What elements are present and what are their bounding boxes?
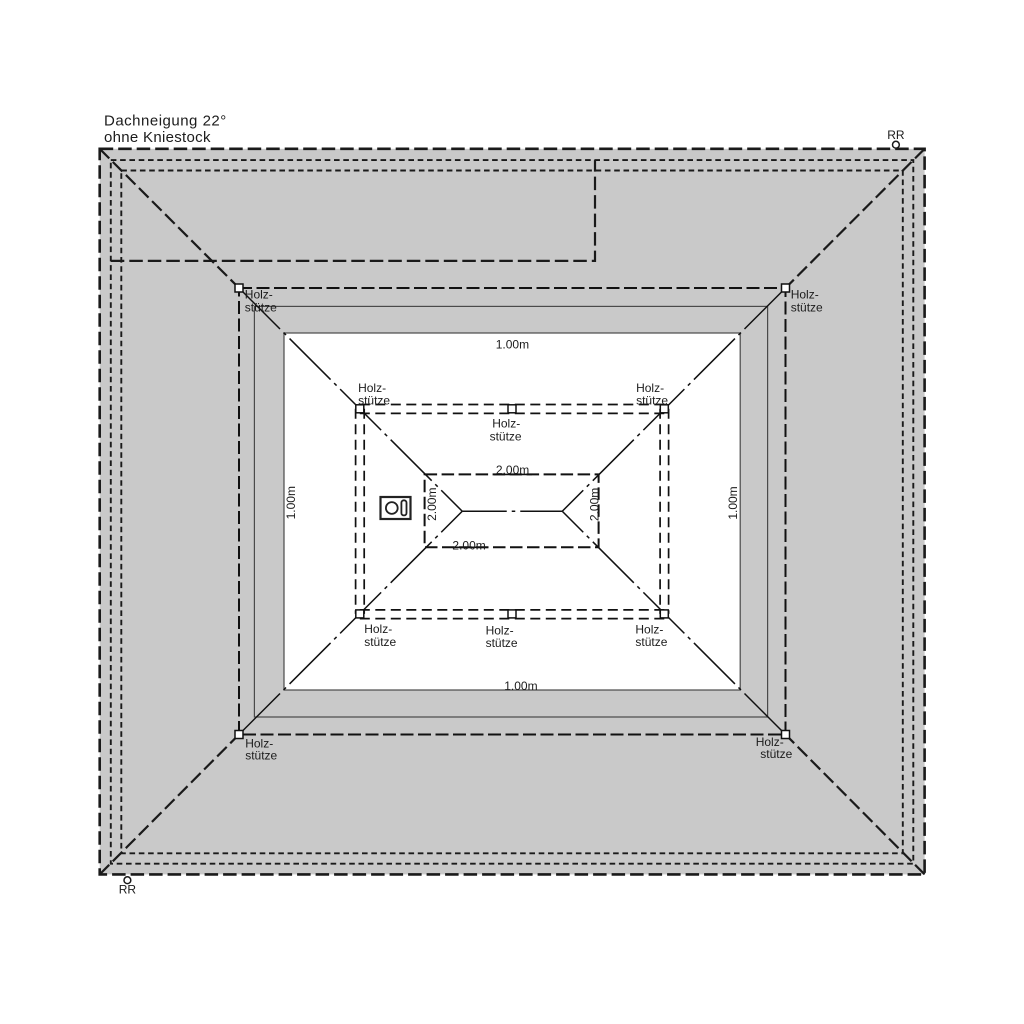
svg-text:1.00m: 1.00m (496, 337, 529, 351)
svg-text:1.00m: 1.00m (504, 679, 537, 693)
svg-text:1.00m: 1.00m (284, 486, 298, 519)
svg-text:ohne Kniestock: ohne Kniestock (104, 129, 211, 146)
svg-text:stütze: stütze (245, 748, 277, 762)
svg-text:stütze: stütze (791, 300, 823, 314)
svg-text:1.00m: 1.00m (726, 486, 740, 519)
svg-text:stütze: stütze (245, 300, 277, 314)
svg-text:2.00m: 2.00m (588, 488, 602, 521)
svg-text:stütze: stütze (635, 635, 667, 649)
svg-text:stütze: stütze (486, 636, 518, 650)
svg-text:stütze: stütze (636, 393, 668, 407)
svg-text:2.00m: 2.00m (496, 463, 529, 477)
svg-text:2.00m: 2.00m (452, 538, 485, 552)
svg-text:stütze: stütze (358, 393, 390, 407)
svg-text:2.00m: 2.00m (425, 488, 439, 521)
svg-text:stütze: stütze (760, 747, 792, 761)
svg-text:stütze: stütze (364, 635, 396, 649)
svg-text:Dachneigung 22°: Dachneigung 22° (104, 112, 227, 129)
svg-text:RR: RR (887, 128, 905, 142)
svg-text:RR: RR (119, 883, 137, 897)
svg-text:stütze: stütze (490, 429, 522, 443)
